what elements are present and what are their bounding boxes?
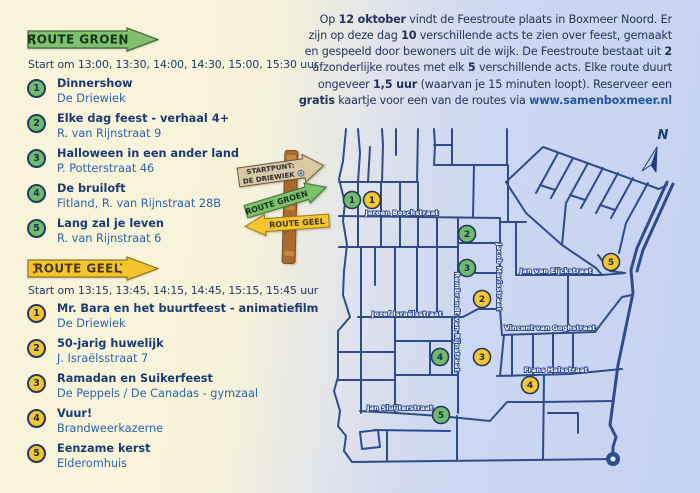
street-label: Jeroen Boschstraat — [364, 209, 438, 217]
route-geel-stop-2: 250-jarig huwelijkJ. Israëlsstraat 7 — [27, 337, 329, 367]
stop-location: De Peppels / De Canadas - gymzaal — [57, 387, 258, 402]
street-label: Rembrandt van Rijnstraat — [453, 272, 461, 372]
street-label: Frans Halsstraat — [524, 366, 588, 374]
street-label: Jacob Marisstraat — [495, 242, 503, 311]
map-marker-green-5: 5 — [433, 407, 450, 424]
map-marker-yellow-3: 3 — [474, 349, 491, 366]
svg-text:2: 2 — [464, 230, 470, 240]
route-geel-stop-4: 4Vuur!Brandweerkazerne — [27, 407, 329, 437]
stop-number-badge: 1 — [27, 304, 46, 323]
route-geel-banner: ROUTE GEEL — [27, 256, 159, 281]
stop-title: 50-jarig huwelijk — [57, 337, 164, 352]
svg-text:2: 2 — [479, 295, 485, 305]
stop-location: Brandweerkazerne — [57, 422, 163, 437]
route-groen-start-times: Start om 13:00, 13:30, 14:00, 14:30, 15:… — [28, 58, 318, 71]
map-marker-yellow-4: 4 — [522, 377, 539, 394]
map-marker-yellow-1: 1 — [364, 192, 381, 209]
map-marker-yellow-2: 2 — [474, 291, 491, 308]
stop-title: Dinnershow — [57, 77, 133, 92]
stop-location: De Driewiek — [57, 317, 318, 332]
svg-text:4: 4 — [527, 381, 533, 391]
stop-location: R. van Rijnstraat 6 — [57, 232, 164, 247]
map-marker-green-1: 1 — [344, 192, 361, 209]
street-label: Jozef Israëlsstraat — [371, 310, 442, 318]
route-groen-banner-label: ROUTE GROEN — [27, 33, 129, 47]
stop-title: Mr. Bara en het buurtfeest - animatiefil… — [57, 302, 318, 317]
svg-text:3: 3 — [479, 353, 485, 363]
stop-title: Eenzame kerst — [57, 442, 151, 457]
stop-number-badge: 2 — [27, 339, 46, 358]
stop-number-badge: 3 — [27, 149, 46, 168]
stop-title: Elke dag feest - verhaal 4+ — [57, 112, 229, 127]
street-label: Jan van Eijckstraat — [519, 267, 592, 275]
route-geel-stops: 1Mr. Bara en het buurtfeest - animatiefi… — [27, 302, 329, 472]
map-marker-green-4: 4 — [432, 349, 449, 366]
stop-location: Fitland, R. van Rijnstraat 28B — [57, 197, 221, 212]
stop-title: De bruiloft — [57, 182, 221, 197]
street-label: Jan Sluijterstraat — [366, 404, 433, 412]
stop-location: De Driewiek — [57, 92, 133, 107]
compass-n-label: N — [658, 128, 669, 143]
compass-north-icon: N — [642, 128, 669, 172]
route-groen-stop-1: 1DinnershowDe Driewiek — [27, 77, 329, 107]
neighbourhood-map: Jeroen BoschstraatJan van EijckstraatJoz… — [330, 125, 676, 477]
stop-number-badge: 4 — [27, 184, 46, 203]
stop-number-badge: 1 — [27, 79, 46, 98]
intro-text: Op 12 oktober vindt de Feestroute plaats… — [298, 12, 672, 109]
svg-text:1: 1 — [349, 196, 355, 206]
stop-number-badge: 5 — [27, 219, 46, 238]
stop-number-badge: 4 — [27, 409, 46, 428]
stop-location: R. van Rijnstraat 9 — [57, 127, 229, 142]
map-endpoint-dot — [606, 452, 620, 466]
svg-text:5: 5 — [438, 411, 444, 421]
stop-number-badge: 5 — [27, 444, 46, 463]
route-geel-stop-3: 3Ramadan en SuikerfeestDe Peppels / De C… — [27, 372, 329, 402]
stop-title: Halloween in een ander land — [57, 147, 239, 162]
svg-text:5: 5 — [608, 258, 614, 268]
map-marker-green-2: 2 — [459, 226, 476, 243]
stop-number-badge: 3 — [27, 374, 46, 393]
route-geel-stop-5: 5Eenzame kerstElderomhuis — [27, 442, 329, 472]
svg-text:3: 3 — [464, 264, 470, 274]
website-link[interactable]: www.samenboxmeer.nl — [529, 94, 672, 107]
svg-text:1: 1 — [369, 196, 375, 206]
stop-location: Elderomhuis — [57, 457, 151, 472]
street-label: Vincent van Goghstraat — [504, 324, 595, 332]
route-geel-start-times: Start om 13:15, 13:45, 14:15, 14:45, 15:… — [28, 284, 318, 297]
stop-title: Ramadan en Suikerfeest — [57, 372, 258, 387]
feestroute-flyer: ROUTE GROEN Start om 13:00, 13:30, 14:00… — [0, 0, 700, 493]
stop-title: Vuur! — [57, 407, 163, 422]
route-geel-banner-label: ROUTE GEEL — [34, 262, 122, 276]
route-groen-stop-2: 2Elke dag feest - verhaal 4+R. van Rijns… — [27, 112, 329, 142]
stop-title: Lang zal je leven — [57, 217, 164, 232]
map-marker-green-3: 3 — [459, 260, 476, 277]
svg-text:4: 4 — [437, 353, 443, 363]
post-stripe — [284, 251, 294, 256]
stop-location: P. Potterstraat 46 — [57, 162, 239, 177]
map-markers: 1123254345 — [344, 192, 620, 424]
stop-number-badge: 2 — [27, 114, 46, 133]
route-groen-banner: ROUTE GROEN — [27, 27, 159, 52]
stop-location: J. Israëlsstraat 7 — [57, 352, 164, 367]
map-marker-yellow-5: 5 — [603, 254, 620, 271]
route-geel-stop-1: 1Mr. Bara en het buurtfeest - animatiefi… — [27, 302, 329, 332]
target-icon — [298, 170, 305, 177]
